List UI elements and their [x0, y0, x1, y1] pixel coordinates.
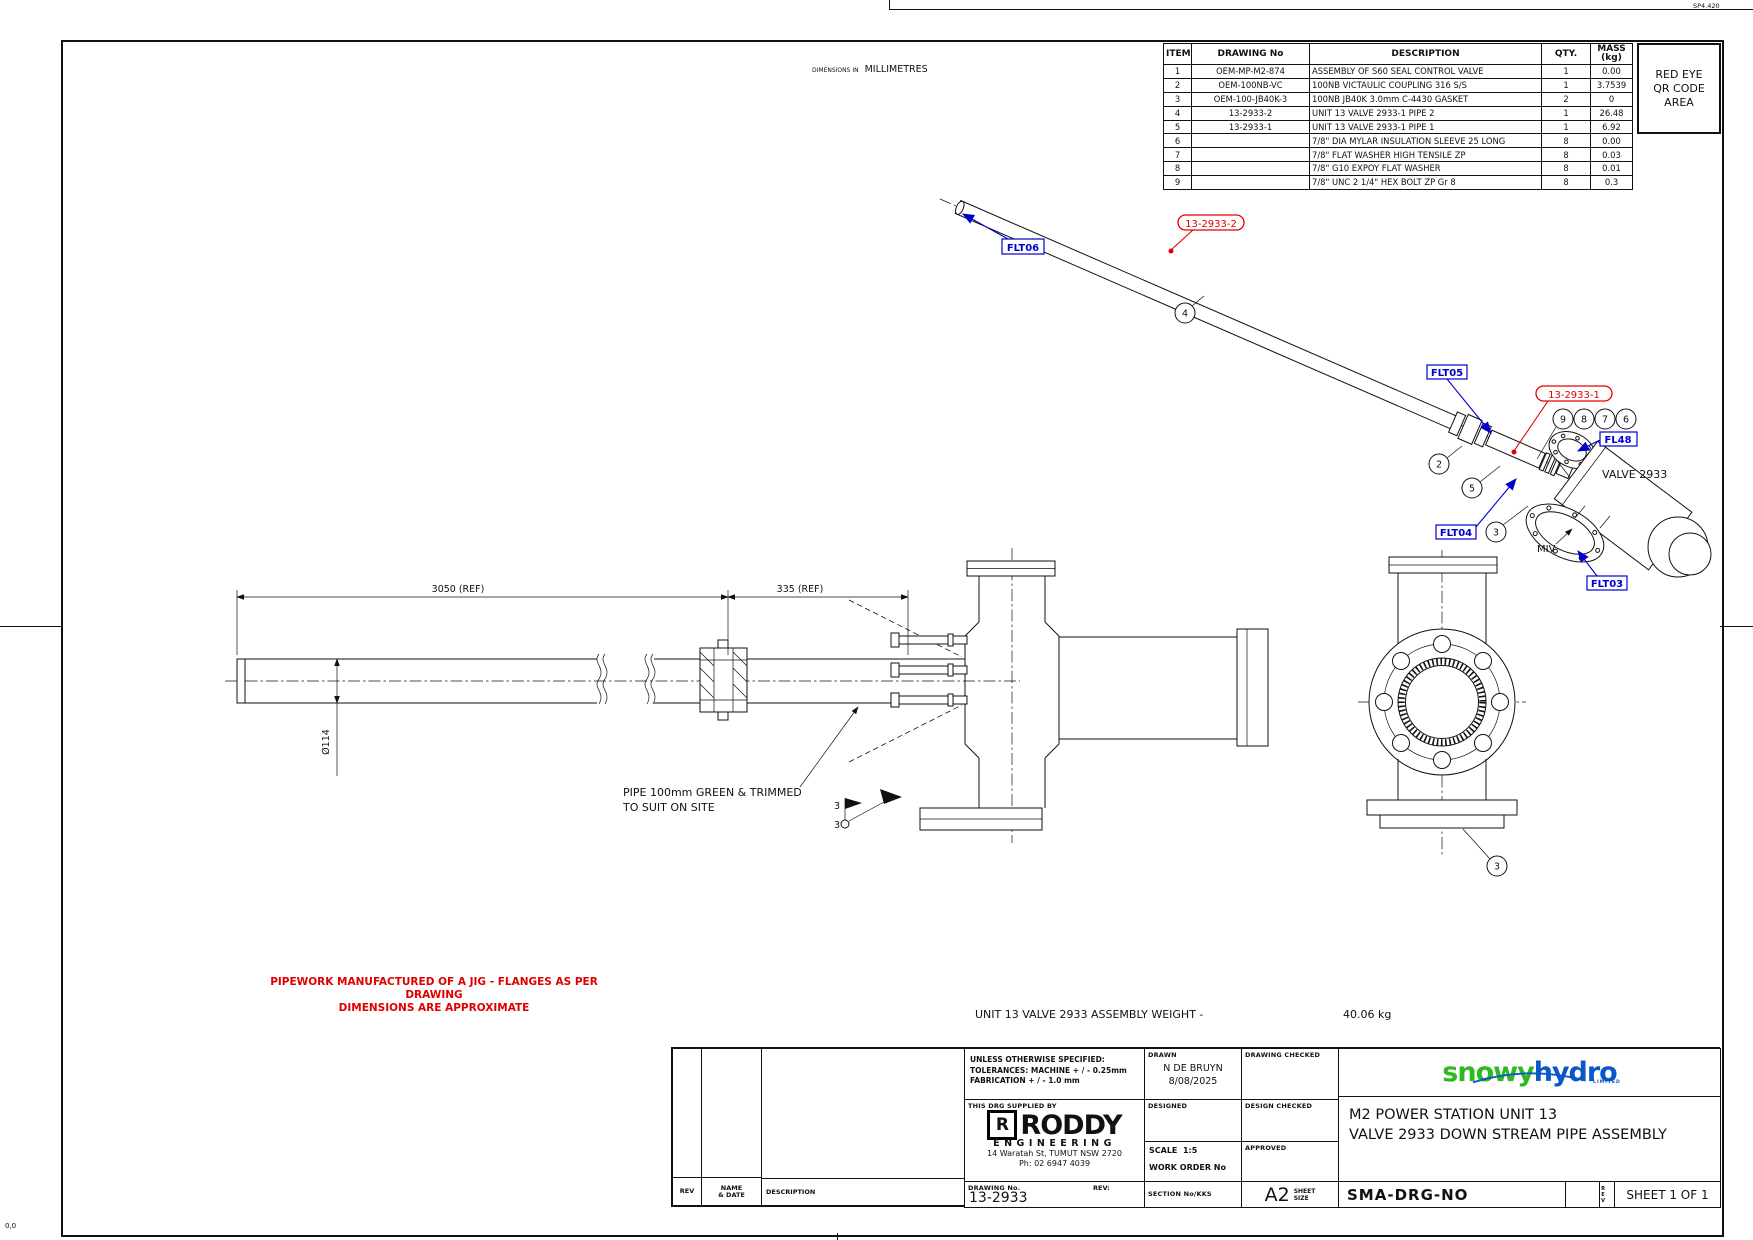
- balloon-item-2: 2: [1429, 446, 1462, 474]
- design-checked-cell: DESIGN CHECKED: [1241, 1099, 1339, 1142]
- swoosh-icon: [1470, 1072, 1589, 1084]
- flt04-text: FLT04: [1440, 528, 1472, 539]
- assembly-weight-label: UNIT 13 VALVE 2933 ASSEMBLY WEIGHT -: [975, 1008, 1203, 1021]
- flange-studs: [891, 633, 967, 707]
- fl48-text: FL48: [1604, 435, 1631, 446]
- balloon-item-3: 3: [1486, 506, 1528, 542]
- sheet-size-cell: A2 SHEETSIZE: [1241, 1181, 1339, 1208]
- roddy-logo: R RODDY: [965, 1110, 1144, 1140]
- svg-text:3: 3: [1493, 528, 1499, 539]
- bom-row: 413-2933-2UNIT 13 VALVE 2933-1 PIPE 2126…: [1164, 106, 1633, 120]
- dim-dia114: Ø114: [321, 659, 337, 776]
- red-note-line1: PIPEWORK MANUFACTURED OF A JIG - FLANGES…: [248, 976, 620, 1002]
- rev-column: REV: [672, 1048, 702, 1206]
- assembly-weight-value: 40.06 kg: [1343, 1008, 1391, 1021]
- description-column: DESCRIPTION: [761, 1048, 965, 1206]
- sheet-cell: SHEET 1 OF 1: [1614, 1181, 1721, 1208]
- valve-name-text: VALVE 2933: [1602, 468, 1667, 481]
- tag-pipe2: 13-2933-2: [1169, 215, 1245, 254]
- balloon-item-7: 7: [1602, 415, 1608, 426]
- scale-workorder-cell: SCALE 1:5 WORK ORDER No: [1144, 1141, 1242, 1182]
- dim-3050-text: 3050 (REF): [432, 584, 485, 595]
- pipe-note-line1: PIPE 100mm GREEN & TRIMMED: [623, 786, 802, 799]
- bom-header-row: ITEM DRAWING No DESCRIPTION QTY. MASS(kg…: [1164, 44, 1633, 65]
- bom-header-drawing-no: DRAWING No: [1192, 44, 1310, 65]
- rev-column-label: REV: [673, 1177, 701, 1205]
- flange-face-view: 3: [1358, 550, 1526, 876]
- balloon-item-8: 8: [1581, 415, 1587, 426]
- bom-row: 2OEM-100NB-VC100NB VICTAULIC COUPLING 31…: [1164, 78, 1633, 92]
- scale-value: 1:5: [1183, 1146, 1197, 1155]
- drawn-date: 8/08/2025: [1145, 1075, 1241, 1088]
- supplied-by-cell: THIS DRG SUPPLIED BY R RODDY ENGINEERING…: [964, 1099, 1145, 1182]
- drawing-title-line1: M2 POWER STATION UNIT 13: [1349, 1105, 1720, 1125]
- roddy-address-2: Ph: 02 6947 4039: [965, 1159, 1144, 1169]
- svg-text:4: 4: [1182, 309, 1188, 320]
- name-date-column: NAME & DATE: [701, 1048, 762, 1206]
- section-cell: SECTION No/KKS: [1144, 1181, 1242, 1208]
- tag-pipe2-text: 13-2933-2: [1185, 219, 1237, 230]
- flt05-text: FLT05: [1431, 368, 1463, 379]
- qr-code-area: RED EYE QR CODE AREA: [1637, 43, 1721, 134]
- miv-text: MIV: [1537, 544, 1556, 555]
- sma-cell: SMA-DRG-NO: [1338, 1181, 1566, 1208]
- title-cell: M2 POWER STATION UNIT 13 VALVE 2933 DOWN…: [1338, 1096, 1721, 1182]
- red-note-line2: DIMENSIONS ARE APPROXIMATE: [248, 1002, 620, 1015]
- bom-row: 67/8" DIA MYLAR INSULATION SLEEVE 25 LON…: [1164, 134, 1633, 148]
- roddy-logo-mark: R: [987, 1110, 1017, 1140]
- brand-cell: snowyhydro LIMITED: [1338, 1048, 1721, 1097]
- designed-cell: DESIGNED: [1144, 1099, 1242, 1142]
- balloon-item-6: 6: [1623, 415, 1629, 426]
- bom-row: 513-2933-1UNIT 13 VALVE 2933-1 PIPE 116.…: [1164, 120, 1633, 134]
- description-column-label: DESCRIPTION: [762, 1178, 964, 1205]
- bom-header-mass: MASS(kg): [1591, 44, 1633, 65]
- approved-cell: APPROVED: [1241, 1141, 1339, 1182]
- weld-num-upper: 3: [834, 801, 840, 812]
- snowyhydro-logo: snowyhydro LIMITED: [1339, 1049, 1720, 1096]
- tag-pipe1-text: 13-2933-1: [1548, 390, 1600, 401]
- flt03-text: FLT03: [1591, 579, 1623, 590]
- drawing-no-value: 13-2933: [969, 1190, 1028, 1206]
- iso-pipe2: [954, 200, 1456, 429]
- drawing-title-line2: VALVE 2933 DOWN STREAM PIPE ASSEMBLY: [1349, 1125, 1720, 1145]
- drawing-no-cell: DRAWING No. REV: 13-2933: [964, 1181, 1145, 1208]
- balloon-item-3-flange: 3: [1463, 829, 1507, 876]
- bom-header-description: DESCRIPTION: [1310, 44, 1542, 65]
- drawing-checked-cell: DRAWING CHECKED: [1241, 1048, 1339, 1100]
- victaulic-coupling: [700, 640, 747, 720]
- tolerances-cell: UNLESS OTHERWISE SPECIFIED: TOLERANCES: …: [964, 1048, 1145, 1100]
- svg-text:5: 5: [1469, 484, 1475, 495]
- bom-row: 97/8" UNC 2 1/4" HEX BOLT ZP Gr 880.3: [1164, 176, 1633, 190]
- rev-vertical-cell: REV: [1599, 1181, 1615, 1208]
- bom-row: 87/8" G10 EXPOY FLAT WASHER80.01: [1164, 162, 1633, 176]
- red-note: PIPEWORK MANUFACTURED OF A JIG - FLANGES…: [248, 976, 620, 1015]
- bom-header-qty: QTY.: [1542, 44, 1591, 65]
- drawn-name: N DE BRUYN: [1145, 1062, 1241, 1075]
- balloon-item-9: 9: [1560, 415, 1566, 426]
- dim-335-text: 335 (REF): [777, 584, 824, 595]
- drawing-sheet: SP4.420 0,0 DIMENSIONS INMILLIMETRES: [0, 0, 1753, 1240]
- work-order-label: WORK ORDER No: [1149, 1163, 1241, 1172]
- weld-num-lower: 3: [834, 820, 840, 831]
- flow-arrow: [880, 789, 902, 804]
- roddy-address-1: 14 Waratah St, TUMUT NSW 2720: [965, 1149, 1144, 1159]
- balloon-item-5: 5: [1462, 466, 1500, 498]
- sheet-size-value: A2: [1265, 1184, 1290, 1206]
- side-view: 3050 (REF) 335 (REF) Ø114 PIPE 100mm GRE…: [225, 548, 1268, 843]
- pipe-note: PIPE 100mm GREEN & TRIMMED TO SUIT ON SI…: [622, 707, 858, 814]
- dim-3050: 3050 (REF): [237, 584, 728, 655]
- dim-335: 335 (REF): [728, 584, 908, 655]
- bom-row: 1OEM-MP-M2-874ASSEMBLY OF S60 SEAL CONTR…: [1164, 65, 1633, 79]
- tee-body: [920, 561, 1268, 830]
- svg-text:3: 3: [1494, 862, 1500, 873]
- svg-text:2: 2: [1436, 460, 1442, 471]
- flt06-text: FLT06: [1007, 243, 1039, 254]
- rev-empty-cell: [1565, 1181, 1600, 1208]
- title-block: REV NAME & DATE DESCRIPTION UNLESS OTHER…: [671, 1047, 1720, 1207]
- dim-dia-text: Ø114: [321, 729, 332, 755]
- pipe-end-cap: [237, 659, 245, 703]
- weld-symbol: 3 3: [834, 789, 902, 831]
- bom-header-item: ITEM: [1164, 44, 1192, 65]
- name-date-label: NAME & DATE: [702, 1177, 761, 1205]
- pipe-note-line2: TO SUIT ON SITE: [622, 801, 715, 814]
- isometric-view: FLT06 13-2933-2 4 FLT05: [940, 199, 1711, 590]
- drawn-cell: DRAWN N DE BRUYN 8/08/2025: [1144, 1048, 1242, 1100]
- bom-table: ITEM DRAWING No DESCRIPTION QTY. MASS(kg…: [1163, 43, 1633, 190]
- bom-row: 3OEM-100-JB40K-3100NB JB40K 3.0mm C-4430…: [1164, 92, 1633, 106]
- bom-row: 77/8" FLAT WASHER HIGH TENSILE ZP80.03: [1164, 148, 1633, 162]
